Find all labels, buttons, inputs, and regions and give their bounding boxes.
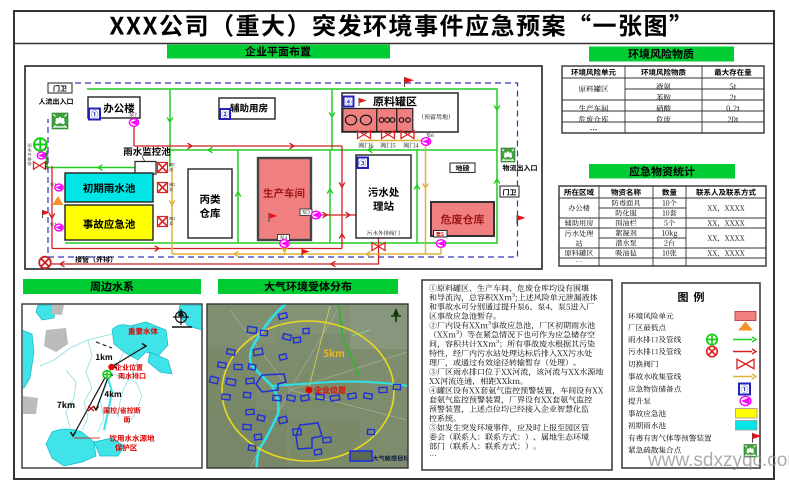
svg-text:www.sdxzyqc.com: www.sdxzyqc.com <box>647 450 789 471</box>
